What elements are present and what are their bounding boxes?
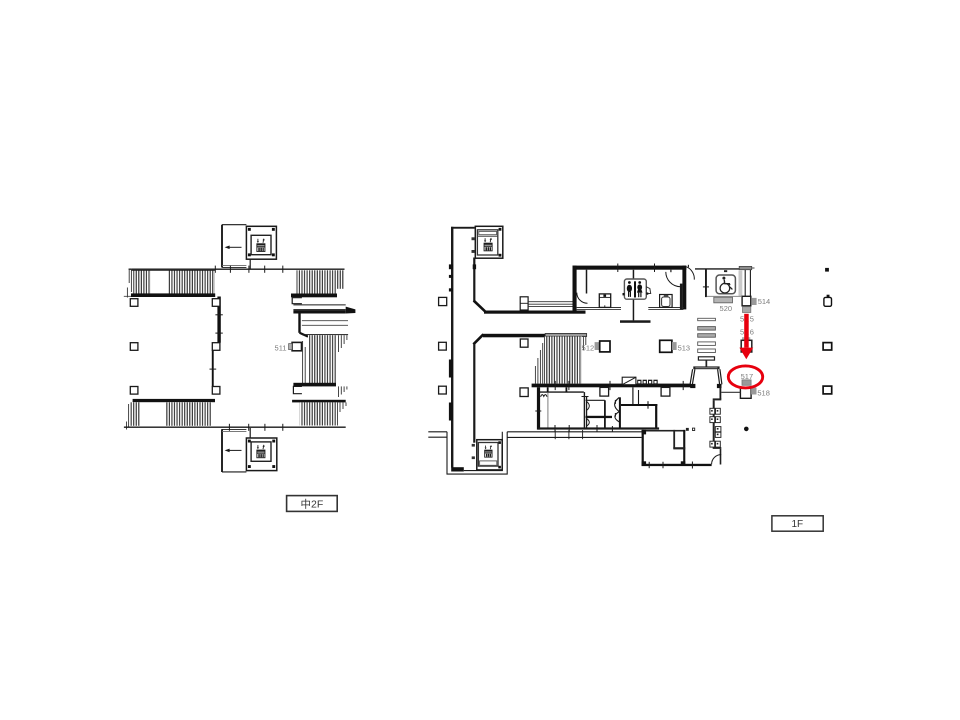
svg-text:1F: 1F <box>791 519 803 530</box>
svg-text:520: 520 <box>720 304 733 313</box>
svg-text:514: 514 <box>758 297 771 306</box>
svg-text:中2F: 中2F <box>301 497 324 510</box>
svg-text:512: 512 <box>582 344 595 353</box>
svg-text:513: 513 <box>678 344 691 353</box>
svg-text:511: 511 <box>275 343 287 352</box>
svg-text:518: 518 <box>757 388 770 397</box>
